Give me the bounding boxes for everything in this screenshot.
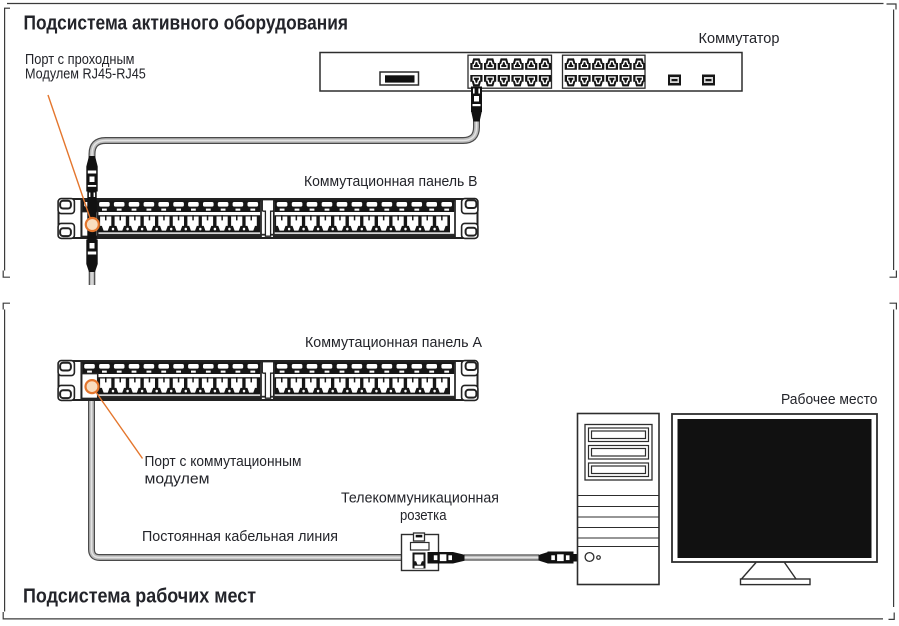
svg-text:Коммутационная панель А: Коммутационная панель А <box>305 335 482 351</box>
svg-text:Постоянная кабельная линия: Постоянная кабельная линия <box>142 529 338 545</box>
svg-text:Порт с коммутационным: Порт с коммутационным <box>145 454 302 470</box>
svg-text:Телекоммуникационная: Телекоммуникационная <box>341 491 499 507</box>
svg-text:модулем: модулем <box>145 471 210 487</box>
svg-text:Коммутатор: Коммутатор <box>699 31 780 47</box>
svg-text:Подсистема рабочих мест: Подсистема рабочих мест <box>23 585 256 607</box>
svg-text:Рабочее место: Рабочее место <box>781 392 878 408</box>
svg-text:Модулем RJ45-RJ45: Модулем RJ45-RJ45 <box>25 67 146 83</box>
svg-text:Подсистема активного оборудова: Подсистема активного оборудования <box>24 12 349 34</box>
svg-text:розетка: розетка <box>400 508 447 524</box>
svg-text:Коммутационная панель B: Коммутационная панель B <box>304 174 478 190</box>
